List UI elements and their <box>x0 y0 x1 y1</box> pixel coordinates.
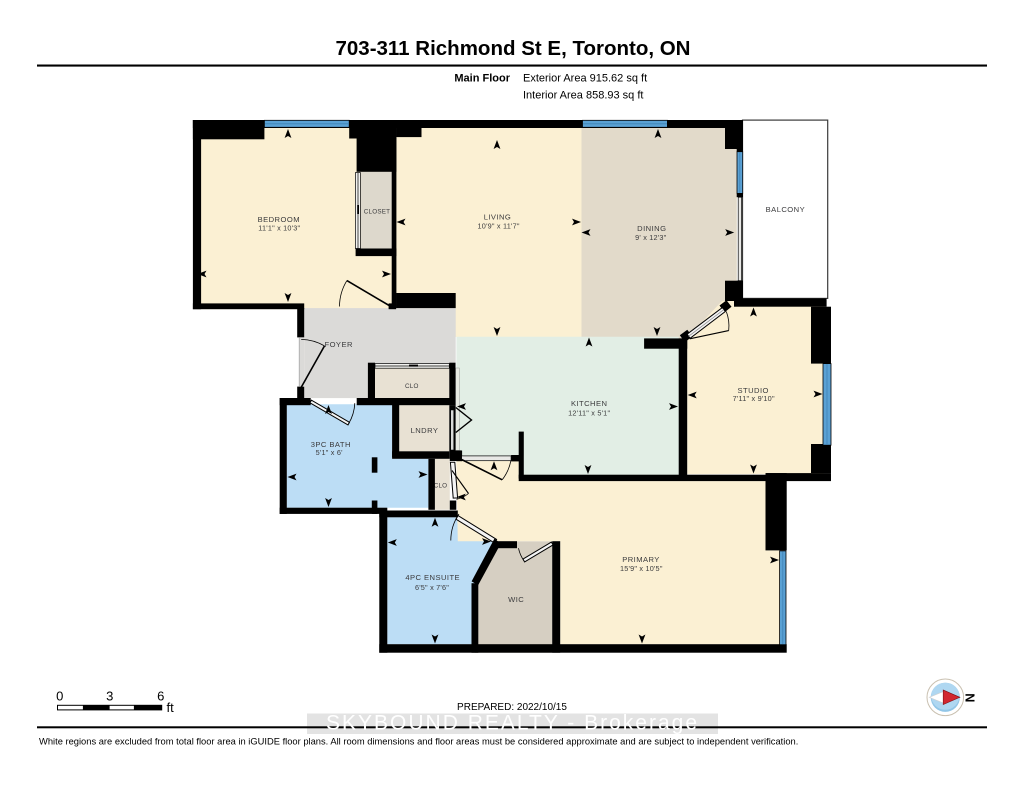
svg-text:KITCHEN: KITCHEN <box>571 399 607 408</box>
svg-text:5'1" x 6': 5'1" x 6' <box>316 448 343 457</box>
svg-text:White regions are excluded fro: White regions are excluded from total fl… <box>39 737 798 747</box>
svg-text:11'1" x 10'3": 11'1" x 10'3" <box>258 224 300 233</box>
svg-text:CLO: CLO <box>405 383 419 390</box>
svg-text:N: N <box>963 693 977 702</box>
svg-text:CLOSET: CLOSET <box>364 209 390 216</box>
svg-text:3: 3 <box>106 689 113 704</box>
svg-text:7'11" x 9'10": 7'11" x 9'10" <box>733 394 775 403</box>
svg-text:9' x 12'3": 9' x 12'3" <box>635 233 667 242</box>
svg-text:WIC: WIC <box>508 595 524 604</box>
svg-text:10'9" x 11'7": 10'9" x 11'7" <box>478 221 520 230</box>
svg-text:CLO: CLO <box>434 483 448 490</box>
svg-text:4PC ENSUITE: 4PC ENSUITE <box>405 573 460 582</box>
svg-text:Exterior Area 915.62 sq ft: Exterior Area 915.62 sq ft <box>523 73 647 85</box>
svg-text:6: 6 <box>157 689 164 704</box>
svg-text:SKYBOUND REALTY - Brokerage: SKYBOUND REALTY - Brokerage <box>326 712 699 735</box>
svg-text:PRIMARY: PRIMARY <box>622 555 660 564</box>
svg-text:Interior Area 858.93 sq ft: Interior Area 858.93 sq ft <box>523 90 643 102</box>
svg-text:15'9" x 10'5": 15'9" x 10'5" <box>620 564 663 573</box>
svg-text:LIVING: LIVING <box>484 213 512 222</box>
svg-text:6'5" x 7'6": 6'5" x 7'6" <box>415 583 449 592</box>
svg-text:12'11" x 5'1": 12'11" x 5'1" <box>568 408 610 417</box>
svg-text:LNDRY: LNDRY <box>411 426 439 435</box>
svg-text:FOYER: FOYER <box>324 340 352 349</box>
svg-text:0: 0 <box>56 689 63 704</box>
svg-text:Main Floor: Main Floor <box>454 73 510 85</box>
svg-text:ft: ft <box>167 700 175 715</box>
svg-text:BEDROOM: BEDROOM <box>258 215 300 224</box>
svg-text:BALCONY: BALCONY <box>766 205 805 214</box>
svg-text:703-311 Richmond St E, Toronto: 703-311 Richmond St E, Toronto, ON <box>335 37 690 60</box>
